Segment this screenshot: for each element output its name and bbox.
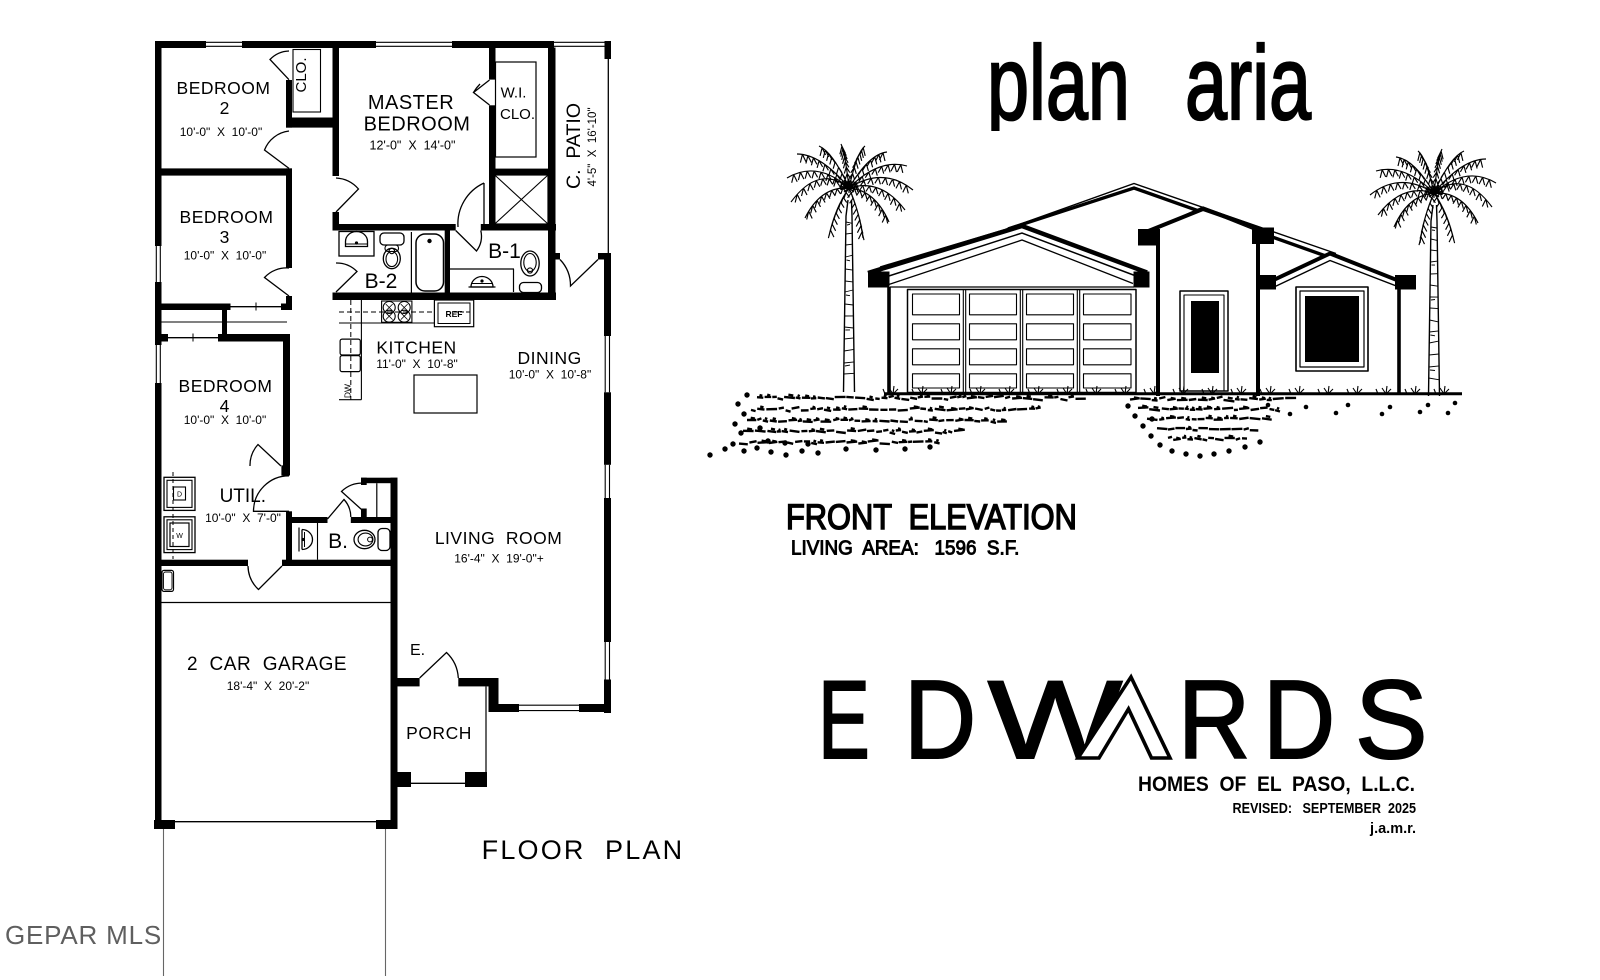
svg-text:PORCH: PORCH — [406, 723, 472, 743]
svg-text:REVISED: SEPTEMBER 2025: REVISED: SEPTEMBER 2025 — [1232, 800, 1416, 816]
svg-text:2 CAR GARAGE: 2 CAR GARAGE — [187, 654, 347, 675]
svg-text:W: W — [176, 533, 183, 540]
svg-text:j.a.m.r.: j.a.m.r. — [1369, 821, 1416, 837]
svg-text:KITCHEN: KITCHEN — [376, 338, 456, 358]
svg-text:10'-0" X 7'-0": 10'-0" X 7'-0" — [205, 511, 281, 525]
svg-text:BEDROOM: BEDROOM — [364, 114, 471, 136]
svg-text:LIVING AREA: 1596 S.F.: LIVING AREA: 1596 S.F. — [791, 537, 1019, 560]
svg-text:LIVING ROOM: LIVING ROOM — [435, 528, 563, 548]
svg-text:FLOOR PLAN: FLOOR PLAN — [482, 835, 685, 865]
svg-text:REF: REF — [446, 309, 463, 319]
svg-text:DW: DW — [343, 384, 353, 398]
svg-text:10'-0" X 10'-0": 10'-0" X 10'-0" — [184, 249, 266, 263]
svg-text:MASTER: MASTER — [368, 92, 454, 114]
svg-text:18'-4" X 20'-2": 18'-4" X 20'-2" — [227, 679, 309, 693]
svg-text:E.: E. — [410, 642, 425, 659]
svg-text:10'-0" X 10'-0": 10'-0" X 10'-0" — [180, 125, 262, 139]
svg-text:plan: plan — [987, 25, 1130, 142]
svg-text:CLO.: CLO. — [500, 106, 535, 123]
svg-text:E: E — [818, 658, 870, 782]
svg-text:BEDROOM: BEDROOM — [180, 207, 274, 227]
svg-text:B.: B. — [328, 530, 348, 553]
svg-text:BEDROOM: BEDROOM — [177, 78, 271, 98]
svg-text:10'-0" X 10'-8": 10'-0" X 10'-8" — [509, 368, 591, 382]
svg-text:11'-0" X 10'-8": 11'-0" X 10'-8" — [376, 357, 458, 371]
svg-text:D: D — [1263, 658, 1335, 782]
svg-text:DINING: DINING — [517, 348, 581, 368]
svg-text:B-2: B-2 — [365, 270, 398, 293]
svg-text:3: 3 — [220, 227, 230, 247]
svg-text:C. PATIO: C. PATIO — [563, 103, 585, 189]
svg-text:FRONT ELEVATION: FRONT ELEVATION — [786, 497, 1077, 536]
svg-text:10'-0" X 10'-0": 10'-0" X 10'-0" — [184, 413, 266, 427]
svg-text:UTIL.: UTIL. — [220, 486, 266, 507]
svg-text:GEPAR MLS: GEPAR MLS — [5, 920, 162, 950]
svg-text:HOMES OF EL PASO, L.L.C.: HOMES OF EL PASO, L.L.C. — [1138, 773, 1415, 796]
svg-text:aria: aria — [1185, 25, 1311, 142]
svg-text:4'-5" X 16'-10": 4'-5" X 16'-10" — [587, 107, 599, 186]
svg-text:CLO.: CLO. — [293, 57, 310, 92]
svg-text:S: S — [1355, 659, 1428, 782]
svg-text:D: D — [904, 658, 976, 782]
svg-text:16'-4" X 19'-0"+: 16'-4" X 19'-0"+ — [454, 552, 543, 566]
svg-text:D: D — [177, 492, 182, 499]
svg-text:W.I.: W.I. — [501, 85, 527, 102]
svg-text:R: R — [1178, 658, 1250, 782]
svg-text:B-1: B-1 — [488, 240, 521, 263]
svg-text:2: 2 — [220, 98, 230, 118]
svg-text:BEDROOM: BEDROOM — [179, 376, 273, 396]
svg-text:12'-0" X 14'-0": 12'-0" X 14'-0" — [370, 139, 456, 153]
